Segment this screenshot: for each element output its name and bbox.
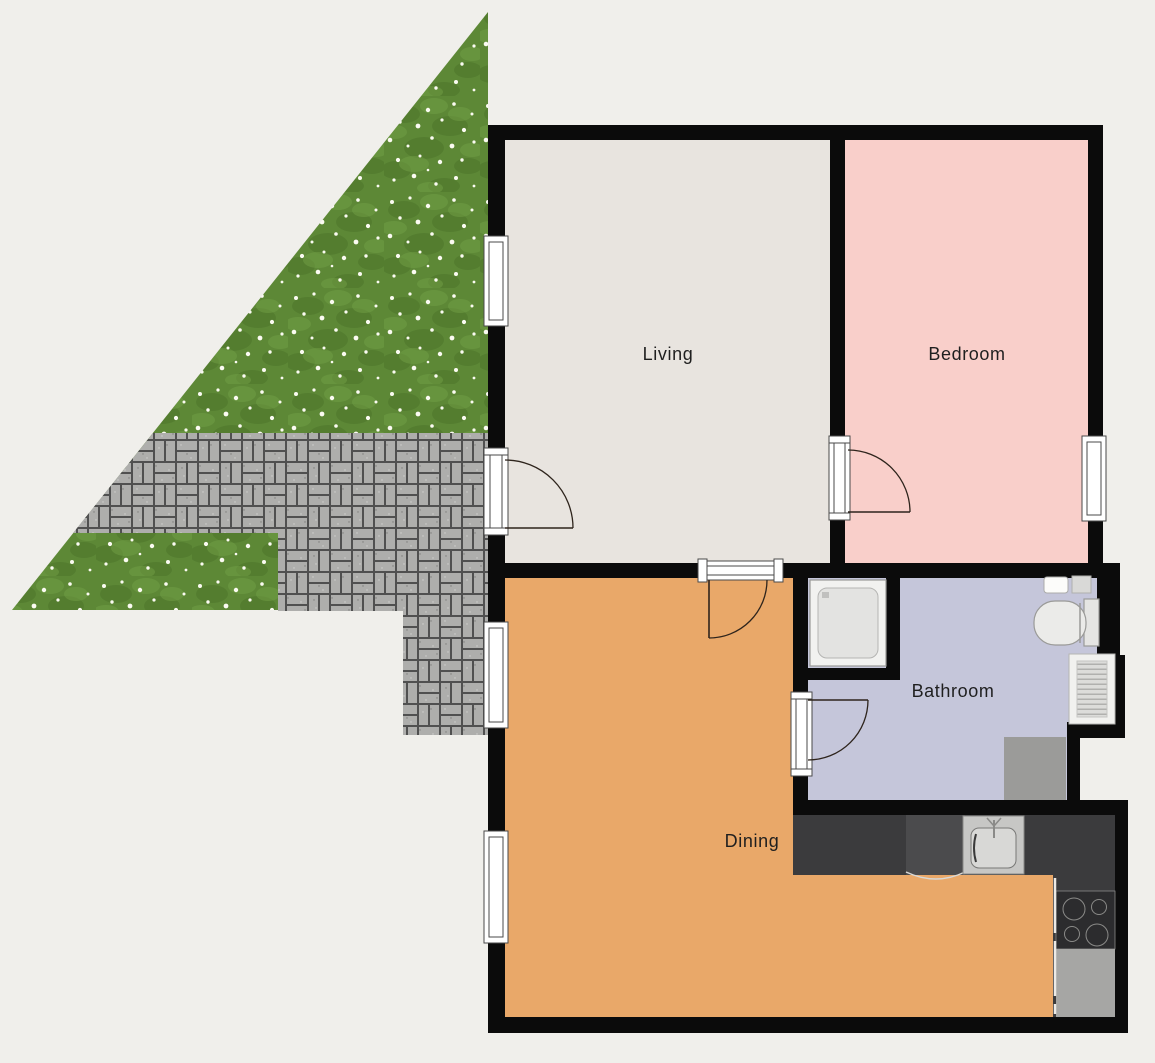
cooktop-icon [1056, 891, 1115, 949]
room-label-living: Living [643, 344, 694, 364]
floor-plan-canvas: Living Bedroom Bathroom Dining [0, 0, 1155, 1063]
room-label-bathroom: Bathroom [912, 681, 995, 701]
wall-south [488, 1017, 1128, 1033]
oven-icon [906, 815, 965, 879]
window-living-west [484, 236, 508, 326]
kitchen-sink-icon [963, 816, 1024, 874]
wall-shower-niche-east [886, 578, 900, 680]
hand-basin-icon [1044, 577, 1068, 593]
wall-north [488, 125, 1103, 140]
wall-shower-niche-south [808, 668, 900, 680]
shower-icon [810, 580, 886, 666]
floor-plan: Living Bedroom Bathroom Dining [0, 0, 1155, 1063]
radiator-icon [1069, 654, 1115, 724]
wall-below-niche [1067, 738, 1080, 815]
room-label-bedroom: Bedroom [928, 344, 1005, 364]
wall-shelf-icon [1072, 576, 1091, 593]
room-label-dining: Dining [725, 831, 780, 851]
wall-bathroom-east [1097, 570, 1120, 655]
window-bedroom-east [1082, 436, 1106, 521]
window-dining-west-2 [484, 831, 508, 943]
window-dining-west-1 [484, 622, 508, 728]
dishwasher-icon [1056, 949, 1115, 1017]
washing-machine-icon [1004, 737, 1066, 800]
wall-kitchen-east [1115, 803, 1128, 1033]
wall-mid-horizontal [505, 563, 1120, 578]
toilet-icon [1034, 599, 1099, 646]
